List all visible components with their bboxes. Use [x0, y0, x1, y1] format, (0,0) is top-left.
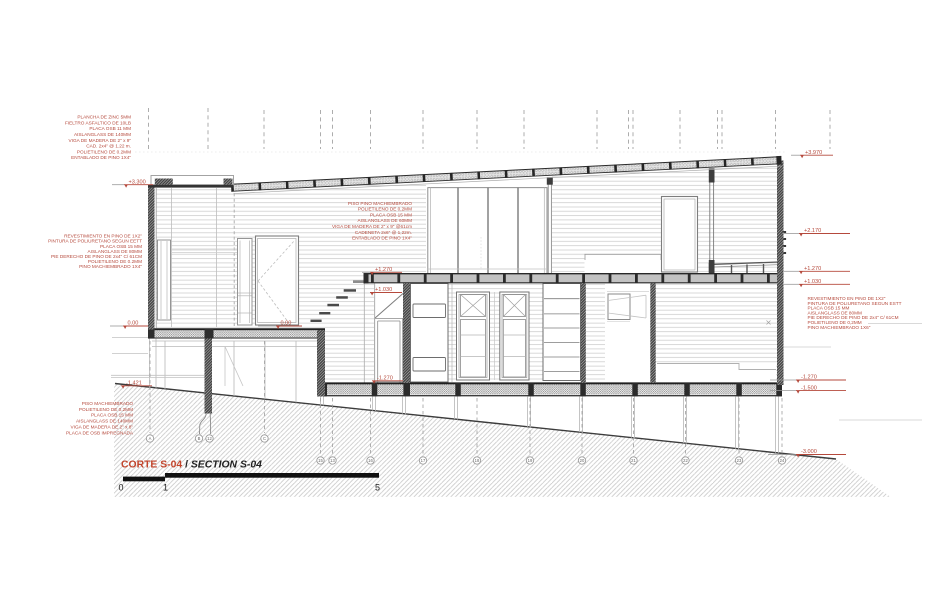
svg-text:-1.270: -1.270 [801, 375, 817, 381]
svg-text:PISO MACHIEMBRADO: PISO MACHIEMBRADO [82, 401, 134, 406]
svg-text:PINO MACHIEMBRADO 1X4": PINO MACHIEMBRADO 1X4" [79, 264, 142, 269]
svg-text:20: 20 [580, 458, 585, 463]
svg-text:+3.970: +3.970 [805, 150, 822, 156]
svg-text:24: 24 [780, 458, 785, 463]
svg-text:PLACA OSB 15 MM: PLACA OSB 15 MM [91, 413, 133, 418]
svg-text:19: 19 [528, 458, 533, 463]
svg-text:23: 23 [737, 458, 742, 463]
svg-text:FIELTRO ASFALTICO DE 10LB: FIELTRO ASFALTICO DE 10LB [65, 120, 131, 125]
svg-text:+1.030: +1.030 [804, 279, 821, 285]
svg-text:CADENETA 2x6" @ 1,22m.: CADENETA 2x6" @ 1,22m. [355, 230, 412, 235]
svg-text:-1.421: -1.421 [126, 381, 142, 387]
svg-text:-3.000: -3.000 [801, 449, 817, 455]
svg-text:AISLANGLASS DE 140MM: AISLANGLASS DE 140MM [76, 419, 133, 424]
svg-text:ENTABLADO DE PINO 1X4": ENTABLADO DE PINO 1X4" [352, 236, 412, 241]
svg-text:-1.270: -1.270 [377, 376, 393, 382]
svg-text:5: 5 [375, 483, 380, 493]
svg-text:VIGA DE MADERA DE 2" x 8": VIGA DE MADERA DE 2" x 8" [71, 425, 134, 430]
svg-text:PISO PINO MACHIEMBRADO: PISO PINO MACHIEMBRADO [348, 201, 412, 206]
svg-text:17: 17 [421, 458, 426, 463]
svg-text:POLIETILENO DE 0.2MM: POLIETILENO DE 0.2MM [79, 407, 133, 412]
svg-text:AISLANGLASS DE 60MM: AISLANGLASS DE 60MM [358, 218, 413, 223]
svg-text:PLANCHA DE ZINC 5MM: PLANCHA DE ZINC 5MM [77, 115, 131, 120]
svg-text:+2.170: +2.170 [804, 228, 821, 234]
svg-text:12: 12 [207, 436, 212, 441]
svg-text:C: C [263, 436, 266, 441]
svg-text:A: A [149, 436, 152, 441]
svg-text:PLACA OSB 15 MM: PLACA OSB 15 MM [370, 212, 412, 217]
svg-text:VIGA DE MADERA DE 2" x 9" @61c: VIGA DE MADERA DE 2" x 9" @61cm [332, 224, 412, 229]
svg-text:PLACA DE OSB IMPREGNADA: PLACA DE OSB IMPREGNADA [66, 430, 134, 435]
svg-text:0: 0 [119, 483, 124, 493]
svg-text:+3.300: +3.300 [129, 179, 146, 185]
svg-text:PLACA OSB 11 MM: PLACA OSB 11 MM [89, 126, 131, 131]
svg-text:-1.500: -1.500 [801, 385, 817, 391]
svg-text:AISLANGLASS DE 140MM: AISLANGLASS DE 140MM [74, 132, 131, 137]
svg-text:13: 13 [330, 458, 335, 463]
svg-text:+1.270: +1.270 [804, 266, 821, 272]
svg-text:16: 16 [368, 458, 373, 463]
svg-text:15: 15 [318, 458, 323, 463]
svg-text:CORTE S-04 / SECTION S-04: CORTE S-04 / SECTION S-04 [121, 460, 262, 471]
svg-text:B: B [198, 436, 201, 441]
svg-text:18: 18 [475, 458, 480, 463]
svg-text:0.00: 0.00 [128, 321, 139, 327]
svg-text:POLIETILENO DE 0,2MM: POLIETILENO DE 0,2MM [358, 207, 412, 212]
svg-text:POLIETILENO DE 0.2MM: POLIETILENO DE 0.2MM [77, 149, 131, 154]
svg-text:0.00: 0.00 [281, 321, 292, 327]
svg-text:CAD. 2x4" @ 1.22 m.: CAD. 2x4" @ 1.22 m. [86, 144, 131, 149]
svg-text:22: 22 [683, 458, 688, 463]
svg-text:PINO MACHIEMBRADO 1X6": PINO MACHIEMBRADO 1X6" [808, 325, 871, 330]
svg-text:21: 21 [631, 458, 636, 463]
svg-text:VIGA DE MADERA DE 2" x 9": VIGA DE MADERA DE 2" x 9" [69, 138, 132, 143]
svg-text:1: 1 [163, 483, 168, 493]
svg-text:+1.270: +1.270 [375, 267, 392, 273]
svg-text:+1.030: +1.030 [375, 287, 392, 293]
svg-text:ENTABLADO DE PINO 1X4": ENTABLADO DE PINO 1X4" [71, 155, 131, 160]
